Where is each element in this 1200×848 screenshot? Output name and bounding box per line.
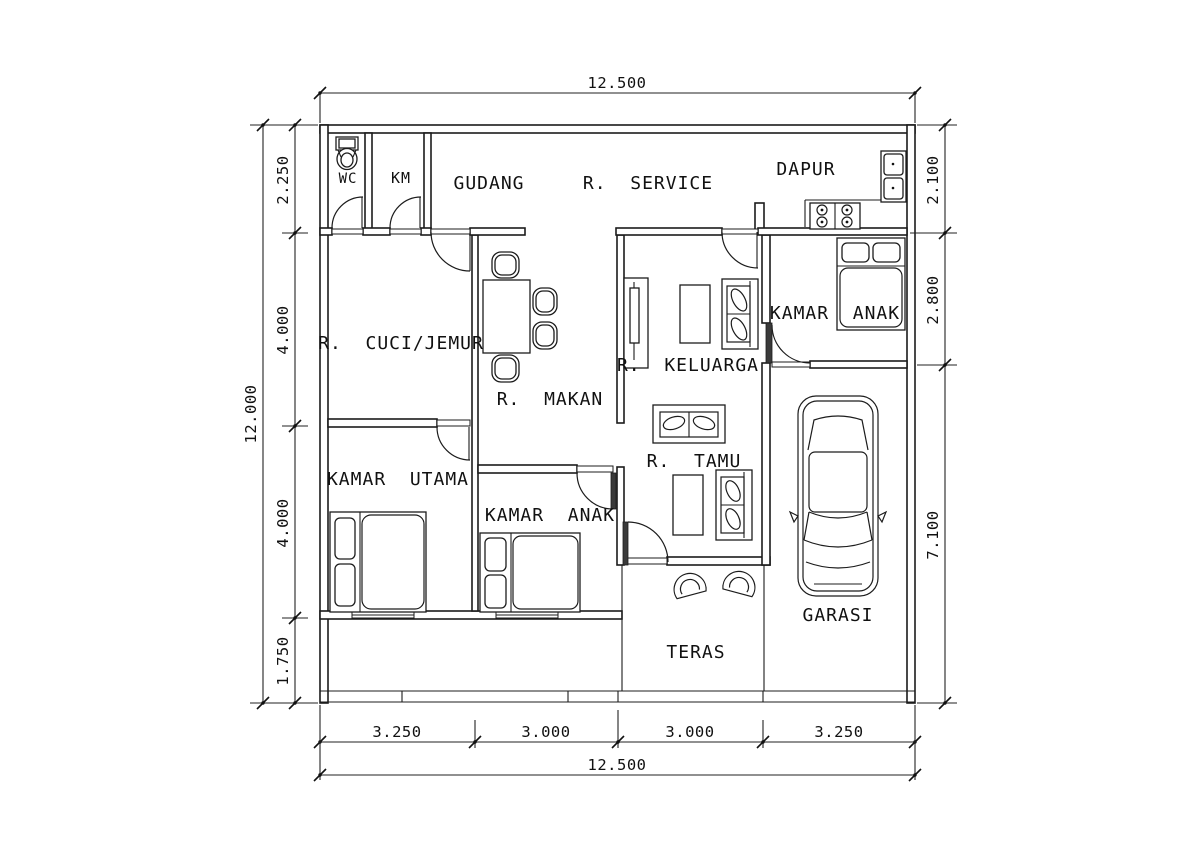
room-label-km: KM: [391, 169, 411, 187]
room-label-service: R. SERVICE: [583, 173, 713, 194]
bed-kamar-anak-bawah: [480, 533, 580, 612]
family-room-table: [680, 285, 710, 343]
room-label-kamar-utama: KAMAR UTAMA: [327, 469, 469, 490]
guest-room-sofa-right: [716, 470, 752, 540]
dining-set: [483, 252, 557, 382]
dim-bottom-seg-1: 3.000: [521, 723, 570, 741]
floor-plan-page: WC KM GUDANG R. SERVICE DAPUR KAMAR ANAK…: [0, 0, 1200, 848]
room-label-garasi: GARASI: [802, 605, 873, 626]
room-label-cuci-jemur: R. CUCI/JEMUR: [318, 333, 484, 354]
floor-plan-canvas: WC KM GUDANG R. SERVICE DAPUR KAMAR ANAK…: [0, 0, 1200, 848]
room-label-teras: TERAS: [666, 642, 725, 663]
dim-left-total: 12.000: [242, 385, 260, 444]
car: [790, 396, 886, 596]
room-label-gudang: GUDANG: [453, 173, 524, 194]
room-label-kamar-anak-bawah: KAMAR ANAK: [485, 505, 615, 526]
dim-bottom-seg-2: 3.000: [665, 723, 714, 741]
room-label-keluarga: R. KELUARGA: [617, 355, 759, 376]
room-label-kamar-anak-atas: KAMAR ANAK: [770, 303, 900, 324]
guest-room-sofa-top: [653, 405, 725, 443]
dim-left-seg-3: 1.750: [274, 636, 292, 685]
dim-bottom-seg-0: 3.250: [372, 723, 421, 741]
dim-left-seg-1: 4.000: [274, 305, 292, 354]
room-label-tamu: R. TAMU: [647, 451, 742, 472]
family-room-sofa: [722, 279, 758, 349]
dim-left-seg-2: 4.000: [274, 498, 292, 547]
bed-kamar-utama: [330, 512, 426, 612]
dim-right-seg-1: 2.800: [924, 275, 942, 324]
dim-bottom-total: 12.500: [588, 756, 647, 774]
guest-room-table: [673, 475, 703, 535]
toilet-fixture: [336, 137, 358, 170]
room-label-dapur: DAPUR: [776, 159, 835, 180]
dim-right-seg-2: 7.100: [924, 510, 942, 559]
dim-bottom-seg-3: 3.250: [814, 723, 863, 741]
room-label-makan: R. MAKAN: [497, 389, 604, 410]
patio-chairs: [671, 568, 759, 599]
room-label-wc: WC: [339, 171, 358, 187]
dim-right-seg-0: 2.100: [924, 155, 942, 204]
kitchen-stove: [810, 203, 860, 229]
dim-top-total: 12.500: [588, 74, 647, 92]
kitchen-sink: [881, 151, 906, 202]
dim-left-seg-0: 2.250: [274, 155, 292, 204]
